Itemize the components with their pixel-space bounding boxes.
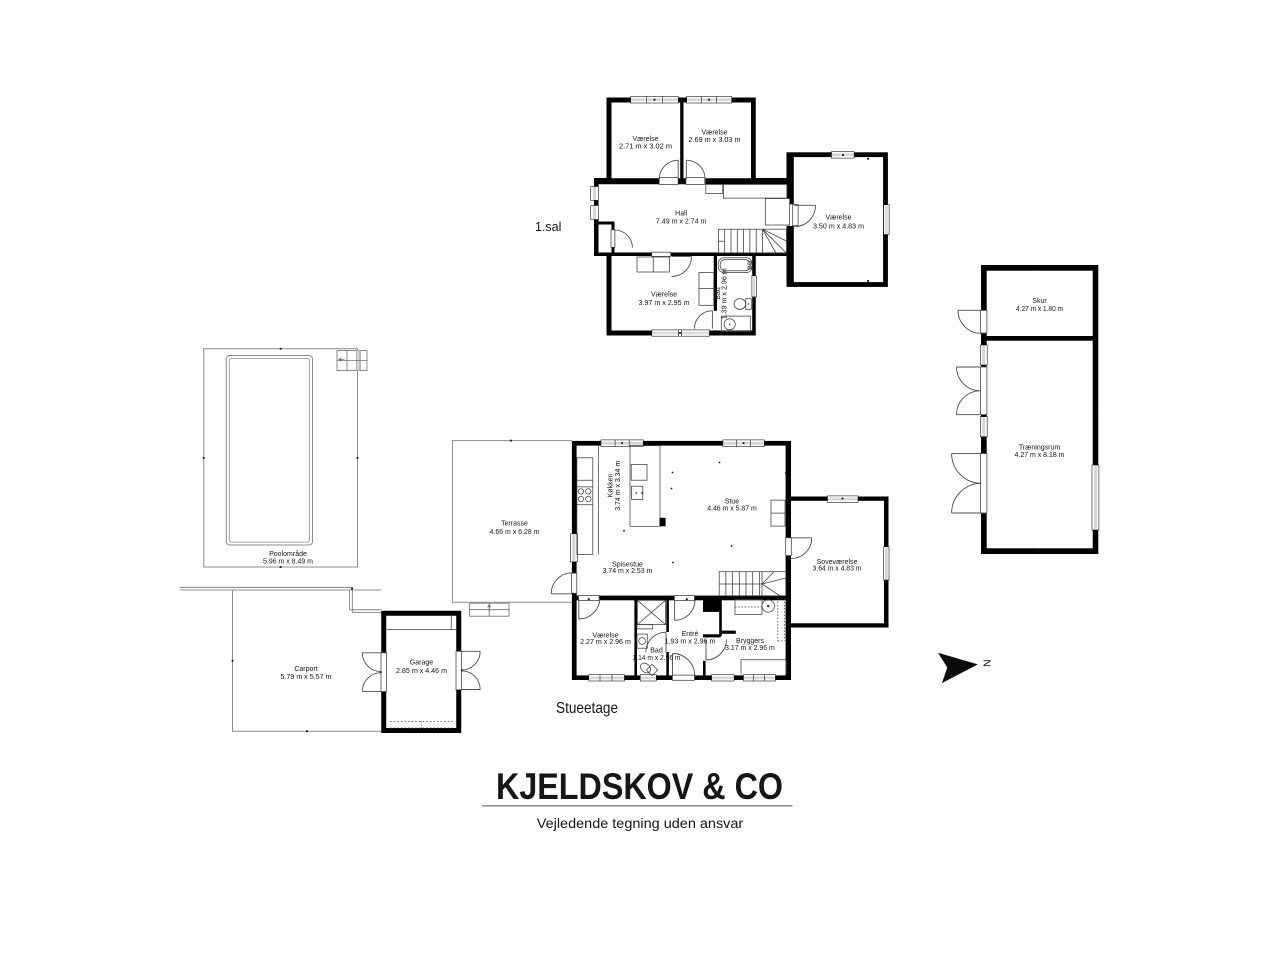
- svg-text:Bad: Bad: [650, 648, 663, 655]
- svg-text:Vejledende tegning uden ansvar: Vejledende tegning uden ansvar: [537, 815, 744, 831]
- svg-text:Hall: Hall: [675, 211, 688, 218]
- svg-text:Carport: Carport: [294, 666, 317, 673]
- svg-text:5.96 m x 8.49 m: 5.96 m x 8.49 m: [263, 559, 313, 566]
- svg-text:4.46 m x 5.87 m: 4.46 m x 5.87 m: [707, 505, 757, 512]
- svg-text:3.50 m x 4.83 m: 3.50 m x 4.83 m: [813, 223, 864, 230]
- svg-text:2.85 m x 4.46 m: 2.85 m x 4.46 m: [396, 668, 447, 675]
- svg-text:7.49 m x 2.74 m: 7.49 m x 2.74 m: [656, 218, 707, 225]
- svg-text:3.97 m x 2.95 m: 3.97 m x 2.95 m: [639, 300, 690, 307]
- svg-text:4.66 m x 6.28 m: 4.66 m x 6.28 m: [490, 529, 540, 536]
- svg-text:Stue: Stue: [725, 498, 740, 505]
- svg-text:KJELDSKOV & CO: KJELDSKOV & CO: [496, 765, 783, 807]
- svg-text:4.27 m x 1.80 m: 4.27 m x 1.80 m: [1016, 306, 1063, 313]
- svg-text:2.69 m x 3.03 m: 2.69 m x 3.03 m: [689, 137, 741, 144]
- svg-text:2.71 m x 3.02 m: 2.71 m x 3.02 m: [619, 144, 672, 151]
- svg-text:Garage: Garage: [410, 660, 433, 667]
- svg-text:Entré: Entré: [682, 631, 699, 638]
- svg-text:Terrasse: Terrasse: [501, 521, 528, 528]
- svg-text:Poolområde: Poolområde: [269, 550, 307, 558]
- svg-text:1.sal: 1.sal: [535, 220, 561, 234]
- svg-text:4.27 m x 8.18 m: 4.27 m x 8.18 m: [1015, 452, 1065, 459]
- svg-text:Værelse: Værelse: [651, 292, 677, 299]
- svg-text:Værelse: Værelse: [701, 130, 727, 137]
- svg-text:1.14 m x 2.96 m: 1.14 m x 2.96 m: [633, 655, 681, 662]
- svg-text:3.64 m x 4.83 m: 3.64 m x 4.83 m: [813, 566, 862, 573]
- svg-text:Skur: Skur: [1032, 298, 1047, 305]
- svg-text:Køkken: Køkken: [607, 474, 614, 498]
- svg-text:Værelse: Værelse: [825, 215, 851, 222]
- svg-text:5.79 m x 5.57 m: 5.79 m x 5.57 m: [281, 674, 332, 681]
- svg-text:Værelse: Værelse: [632, 136, 658, 143]
- svg-text:3.74 m x 2.53 m: 3.74 m x 2.53 m: [603, 568, 653, 575]
- svg-text:Stueetage: Stueetage: [556, 700, 618, 717]
- svg-text:3.74 m x 3.34 m: 3.74 m x 3.34 m: [615, 461, 622, 511]
- svg-text:2.27 m x 2.96 m: 2.27 m x 2.96 m: [580, 639, 631, 646]
- svg-text:N: N: [981, 659, 993, 667]
- svg-text:1.93 m x 2.96 m: 1.93 m x 2.96 m: [665, 638, 716, 645]
- svg-text:Træningsrum: Træningsrum: [1019, 445, 1061, 452]
- svg-text:3.17 m x 2.96 m: 3.17 m x 2.96 m: [725, 645, 775, 652]
- svg-text:1.39 m x 2.96 m: 1.39 m x 2.96 m: [721, 268, 728, 319]
